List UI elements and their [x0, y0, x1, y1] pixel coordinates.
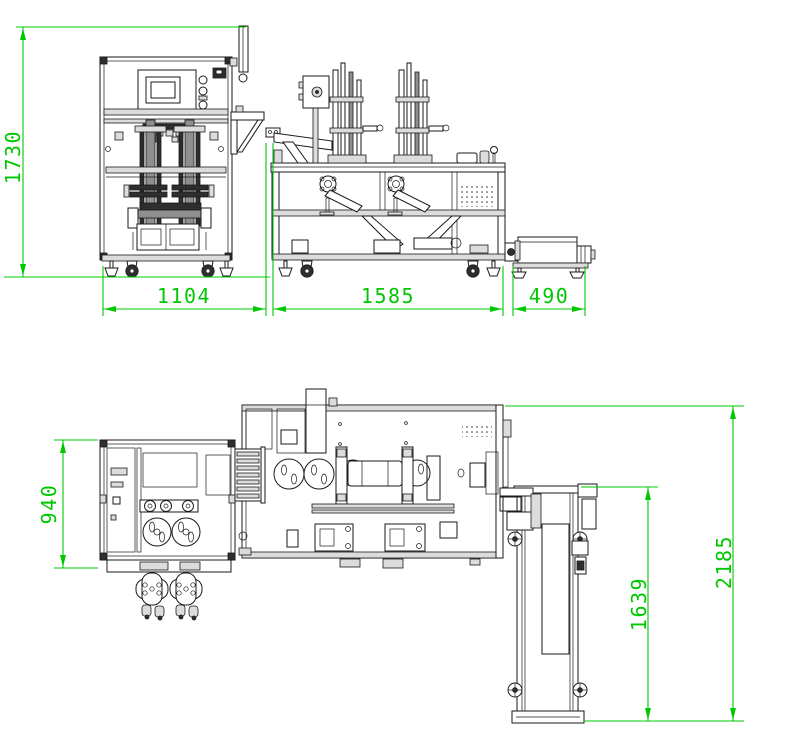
- former-mechanism: [140, 500, 198, 512]
- sensor-box: [575, 557, 586, 574]
- vacuum-disc: [274, 459, 304, 489]
- dim-label-2185: 2185: [712, 535, 736, 589]
- dim-label-1585: 1585: [361, 284, 415, 308]
- hand-wheel: [573, 683, 587, 697]
- dimension-1639: 1639: [581, 487, 658, 721]
- ribbed-guide: [582, 499, 596, 529]
- rotary-feeder-2: [388, 176, 430, 215]
- signal-rod: [230, 26, 248, 82]
- leveling-foot: [570, 268, 584, 278]
- magazine-comb: [235, 447, 265, 503]
- transfer-arm: [266, 128, 332, 163]
- station-tower-1: [328, 63, 383, 163]
- cad-drawing: 1730 1104 1585: [0, 0, 790, 738]
- suction-pad-cluster: [170, 573, 202, 620]
- vent-dots: [462, 423, 492, 437]
- conveyor-motor: [577, 246, 595, 263]
- caster-wheel: [301, 261, 313, 277]
- top-panel-box: [306, 389, 326, 453]
- lower-conveyor-mechanism: [292, 216, 488, 253]
- hmi-panel: [138, 70, 196, 110]
- side-bracket: [578, 484, 597, 497]
- turntable-disc: [143, 518, 171, 546]
- caster-wheel: [126, 261, 138, 277]
- front-view: 1730 1104 1585: [1, 26, 595, 316]
- outfeed-conveyor-plan: [500, 484, 597, 723]
- motor-unit-plan: [315, 524, 353, 551]
- dim-label-1104: 1104: [157, 284, 211, 308]
- conveyor-drive-motor: [500, 488, 541, 530]
- hand-wheel: [508, 532, 522, 546]
- caster-wheel: [202, 261, 214, 277]
- leveling-foot: [279, 261, 292, 276]
- cad-drawing-canvas: 1730 1104 1585: [0, 0, 790, 738]
- turntable-disc: [172, 518, 200, 546]
- power-box: [213, 68, 226, 78]
- vent-dots: [458, 183, 494, 207]
- leveling-foot: [487, 261, 500, 276]
- dim-label-940: 940: [37, 484, 61, 525]
- cabinet-machine-front: [100, 26, 264, 277]
- leveling-foot: [105, 261, 118, 276]
- leveling-foot: [512, 268, 526, 278]
- dim-label-490: 490: [529, 284, 570, 308]
- suction-pad-cluster: [136, 573, 168, 620]
- plan-view: 940 1639 2185: [37, 389, 744, 723]
- vacuum-disc: [304, 459, 334, 489]
- dim-label-1730: 1730: [1, 130, 25, 184]
- main-machine-plan: [239, 389, 511, 568]
- station-slide-plan: [336, 447, 347, 504]
- dimension-940: 940: [37, 440, 98, 568]
- drive-assembly: [128, 203, 211, 250]
- push-buttons: [199, 76, 207, 109]
- station-slide-plan: [402, 447, 413, 504]
- outfeed-unit-front: [505, 237, 595, 278]
- station-tower-2: [394, 63, 449, 163]
- cabinet-machine-plan: [100, 440, 265, 620]
- control-box: [299, 76, 329, 163]
- hand-wheel: [508, 683, 522, 697]
- caster-wheel: [467, 261, 479, 277]
- main-machine-front: [266, 63, 505, 277]
- discharge-chute: [231, 106, 264, 154]
- rotary-feeder-1: [320, 176, 362, 215]
- dim-label-1639: 1639: [627, 577, 651, 631]
- motor-unit-plan: [385, 524, 425, 551]
- carrier-plate: [348, 461, 402, 486]
- leveling-foot: [220, 261, 233, 276]
